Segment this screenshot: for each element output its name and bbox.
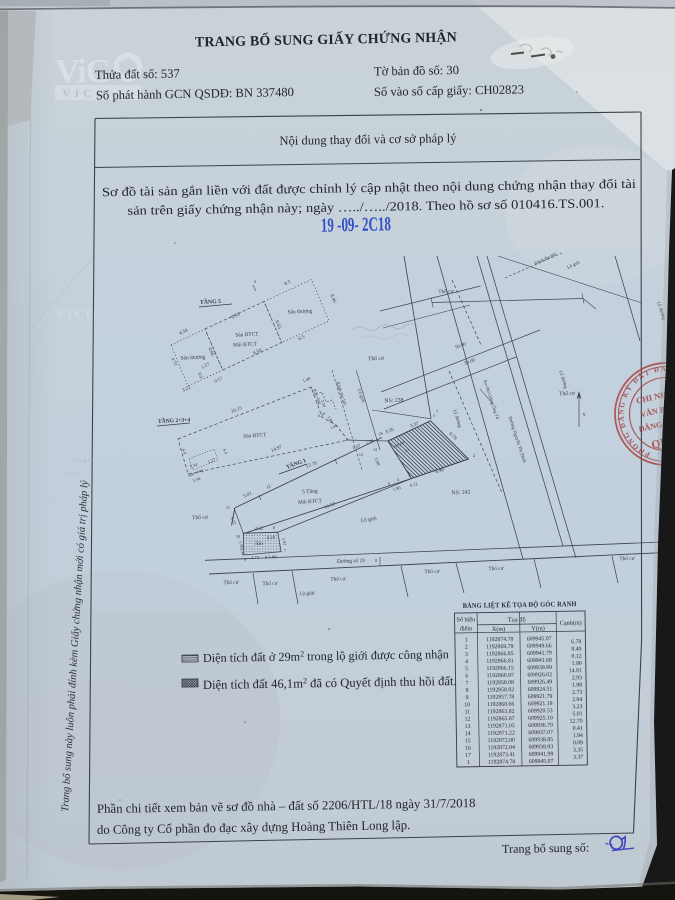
- svg-text:9: 9: [244, 557, 246, 562]
- svg-text:7: 7: [284, 548, 286, 553]
- svg-text:609945.07: 609945.07: [527, 636, 552, 642]
- svg-text:1192865.87: 1192865.87: [487, 716, 515, 722]
- svg-text:NS: 238: NS: 238: [384, 398, 403, 405]
- svg-text:8: 8: [466, 688, 469, 694]
- svg-text:609936.70: 609936.70: [528, 723, 553, 729]
- svg-text:609949.66: 609949.66: [527, 643, 552, 649]
- svg-text:1192874.78: 1192874.78: [488, 759, 516, 765]
- svg-text:Mái BTCT: Mái BTCT: [233, 341, 258, 348]
- svg-text:1.94: 1.94: [573, 733, 583, 739]
- svg-text:N: N: [583, 412, 586, 417]
- svg-text:1192866.15: 1192866.15: [486, 666, 514, 672]
- svg-text:1192869.79: 1192869.79: [486, 644, 514, 650]
- svg-text:Sàn BTCT: Sàn BTCT: [235, 331, 259, 338]
- svg-text:* 1 of 14: * 1 of 14: [75, 459, 93, 464]
- svg-text:609924.51: 609924.51: [528, 687, 553, 693]
- svg-text:Số vào số cấp giấy: CH02823: Số vào số cấp giấy: CH02823: [374, 82, 524, 99]
- svg-text:3.37: 3.37: [573, 755, 583, 761]
- svg-text:7: 7: [465, 681, 468, 687]
- svg-text:5 Tầng: 5 Tầng: [302, 487, 318, 495]
- svg-text:1192872.00: 1192872.00: [488, 738, 516, 744]
- svg-text:VICO: VICO: [56, 306, 98, 321]
- svg-text:14.81: 14.81: [569, 668, 582, 674]
- svg-text:Thổ cư: Thổ cư: [330, 575, 346, 583]
- svg-text:1.98: 1.98: [268, 555, 277, 560]
- svg-text:6: 6: [388, 481, 390, 486]
- svg-text:Cạnh(m): Cạnh(m): [560, 620, 582, 627]
- svg-text:16: 16: [465, 746, 471, 752]
- svg-text:15: 15: [465, 738, 471, 744]
- svg-text:Trang bổ sung số:: Trang bổ sung số:: [502, 840, 589, 856]
- svg-text:2.73: 2.73: [251, 555, 260, 560]
- svg-text:t u s k: t u s k: [65, 471, 77, 476]
- svg-text:11: 11: [465, 710, 471, 716]
- svg-text:1192857.78: 1192857.78: [487, 694, 515, 700]
- svg-text:609941.68: 609941.68: [527, 658, 552, 664]
- svg-text:6: 6: [465, 673, 468, 679]
- svg-text:609937.07: 609937.07: [528, 730, 553, 736]
- svg-text:Thổ cư: Thổ cư: [424, 568, 440, 576]
- svg-text:Thổ cư: Thổ cư: [262, 580, 278, 588]
- svg-text:Thổ cư: Thổ cư: [438, 288, 455, 296]
- svg-text:1192871.05: 1192871.05: [487, 723, 515, 729]
- svg-text:2.93: 2.93: [572, 675, 582, 681]
- svg-text:Lộ giới: Lộ giới: [299, 591, 315, 598]
- svg-text:Đường số 29: Đường số 29: [337, 557, 365, 565]
- svg-text:2.94: 2.94: [572, 697, 582, 703]
- svg-text:609925.10: 609925.10: [528, 715, 553, 721]
- svg-text:609945.07: 609945.07: [529, 759, 554, 765]
- svg-text:2: 2: [465, 645, 468, 651]
- svg-text:1192866.81: 1192866.81: [486, 658, 514, 664]
- svg-text:5: 5: [465, 666, 468, 672]
- svg-text:1192860.66: 1192860.66: [487, 702, 515, 708]
- svg-text:0.29: 0.29: [267, 535, 276, 540]
- svg-text:609941.79: 609941.79: [527, 651, 552, 657]
- svg-text:609921.79: 609921.79: [528, 694, 553, 700]
- svg-text:0.09: 0.09: [573, 740, 583, 746]
- svg-text:17: 17: [465, 753, 471, 759]
- svg-text:19 -09- 2C18: 19 -09- 2C18: [321, 213, 391, 236]
- svg-text:3: 3: [465, 652, 468, 658]
- svg-text:Tờ bản đồ số: 30: Tờ bản đồ số: 30: [374, 63, 459, 78]
- svg-text:1192866.85: 1192866.85: [486, 651, 514, 657]
- svg-text:609938.85: 609938.85: [528, 737, 553, 743]
- svg-text:13: 13: [359, 452, 363, 457]
- svg-text:Thổ cư: Thổ cư: [192, 514, 209, 522]
- svg-text:1192874.78: 1192874.78: [486, 637, 514, 643]
- svg-text:12.70: 12.70: [570, 719, 583, 725]
- svg-text:9: 9: [466, 695, 469, 701]
- svg-text:1192863.82: 1192863.82: [487, 709, 515, 715]
- svg-text:1192860.97: 1192860.97: [487, 673, 515, 679]
- svg-text:609926.49: 609926.49: [528, 679, 553, 685]
- svg-text:6.78: 6.78: [571, 639, 581, 645]
- svg-text:5.01: 5.01: [572, 711, 582, 717]
- svg-text:609941.99: 609941.99: [529, 751, 554, 757]
- svg-text:Thổ cư: Thổ cư: [223, 579, 239, 587]
- svg-text:Tọa độ: Tọa độ: [508, 616, 526, 623]
- svg-text:1: 1: [467, 760, 470, 766]
- svg-text:10: 10: [464, 702, 470, 708]
- svg-text:1192871.22: 1192871.22: [487, 730, 515, 736]
- svg-text:Y(m): Y(m): [531, 625, 545, 632]
- svg-text:609938.93: 609938.93: [529, 744, 554, 750]
- svg-text:X(m): X(m): [492, 626, 506, 633]
- svg-text:0.41: 0.41: [573, 726, 583, 732]
- svg-text:1192872.04: 1192872.04: [488, 745, 516, 751]
- svg-text:8: 8: [375, 558, 377, 563]
- svg-text:609926.02: 609926.02: [527, 672, 552, 678]
- svg-text:1.98: 1.98: [572, 683, 582, 689]
- svg-text:Nội dung thay đổi và cơ sở phá: Nội dung thay đổi và cơ sở pháp lý: [279, 131, 457, 148]
- svg-text:18: 18: [236, 534, 240, 539]
- svg-text:điểm: điểm: [460, 625, 473, 632]
- svg-text:1192858.02: 1192858.02: [487, 687, 515, 693]
- svg-text:Thửa đất số: 537: Thửa đất số: 537: [95, 67, 180, 82]
- svg-text:13: 13: [465, 724, 471, 730]
- svg-text:Thổ cư: Thổ cư: [619, 555, 635, 563]
- svg-text:Thổ cư: Thổ cư: [488, 565, 504, 573]
- svg-text:4.62: 4.62: [254, 527, 263, 532]
- svg-text:2.73: 2.73: [572, 690, 582, 696]
- svg-text:609921.19: 609921.19: [528, 701, 553, 707]
- svg-text:Thổ cư: Thổ cư: [559, 390, 576, 398]
- svg-text:609939.89: 609939.89: [527, 665, 552, 671]
- svg-text:1.90: 1.90: [572, 661, 582, 667]
- svg-text:4: 4: [465, 659, 468, 665]
- svg-text:7: 7: [436, 409, 438, 414]
- svg-text:14: 14: [373, 448, 377, 452]
- svg-text:3.35: 3.35: [573, 747, 583, 753]
- svg-text:12: 12: [465, 717, 471, 723]
- svg-text:Thổ cư: Thổ cư: [368, 355, 385, 363]
- svg-text:609920.53: 609920.53: [528, 708, 553, 714]
- svg-text:8.40: 8.40: [571, 646, 581, 652]
- svg-text:17: 17: [405, 448, 409, 453]
- svg-text:NS: 242: NS: 242: [451, 490, 470, 497]
- svg-text:1192873.41: 1192873.41: [488, 752, 516, 758]
- svg-text:A: A: [254, 279, 257, 284]
- svg-text:14: 14: [465, 731, 471, 737]
- svg-text:Sân: Sân: [255, 542, 263, 547]
- svg-text:1192858.08: 1192858.08: [487, 680, 515, 686]
- svg-text:Số hiệu: Số hiệu: [456, 616, 475, 623]
- svg-text:11: 11: [226, 505, 230, 510]
- svg-text:1: 1: [465, 637, 468, 643]
- svg-text:0.12: 0.12: [571, 654, 581, 660]
- svg-text:3.23: 3.23: [572, 704, 582, 710]
- svg-text:3: 3: [408, 473, 410, 478]
